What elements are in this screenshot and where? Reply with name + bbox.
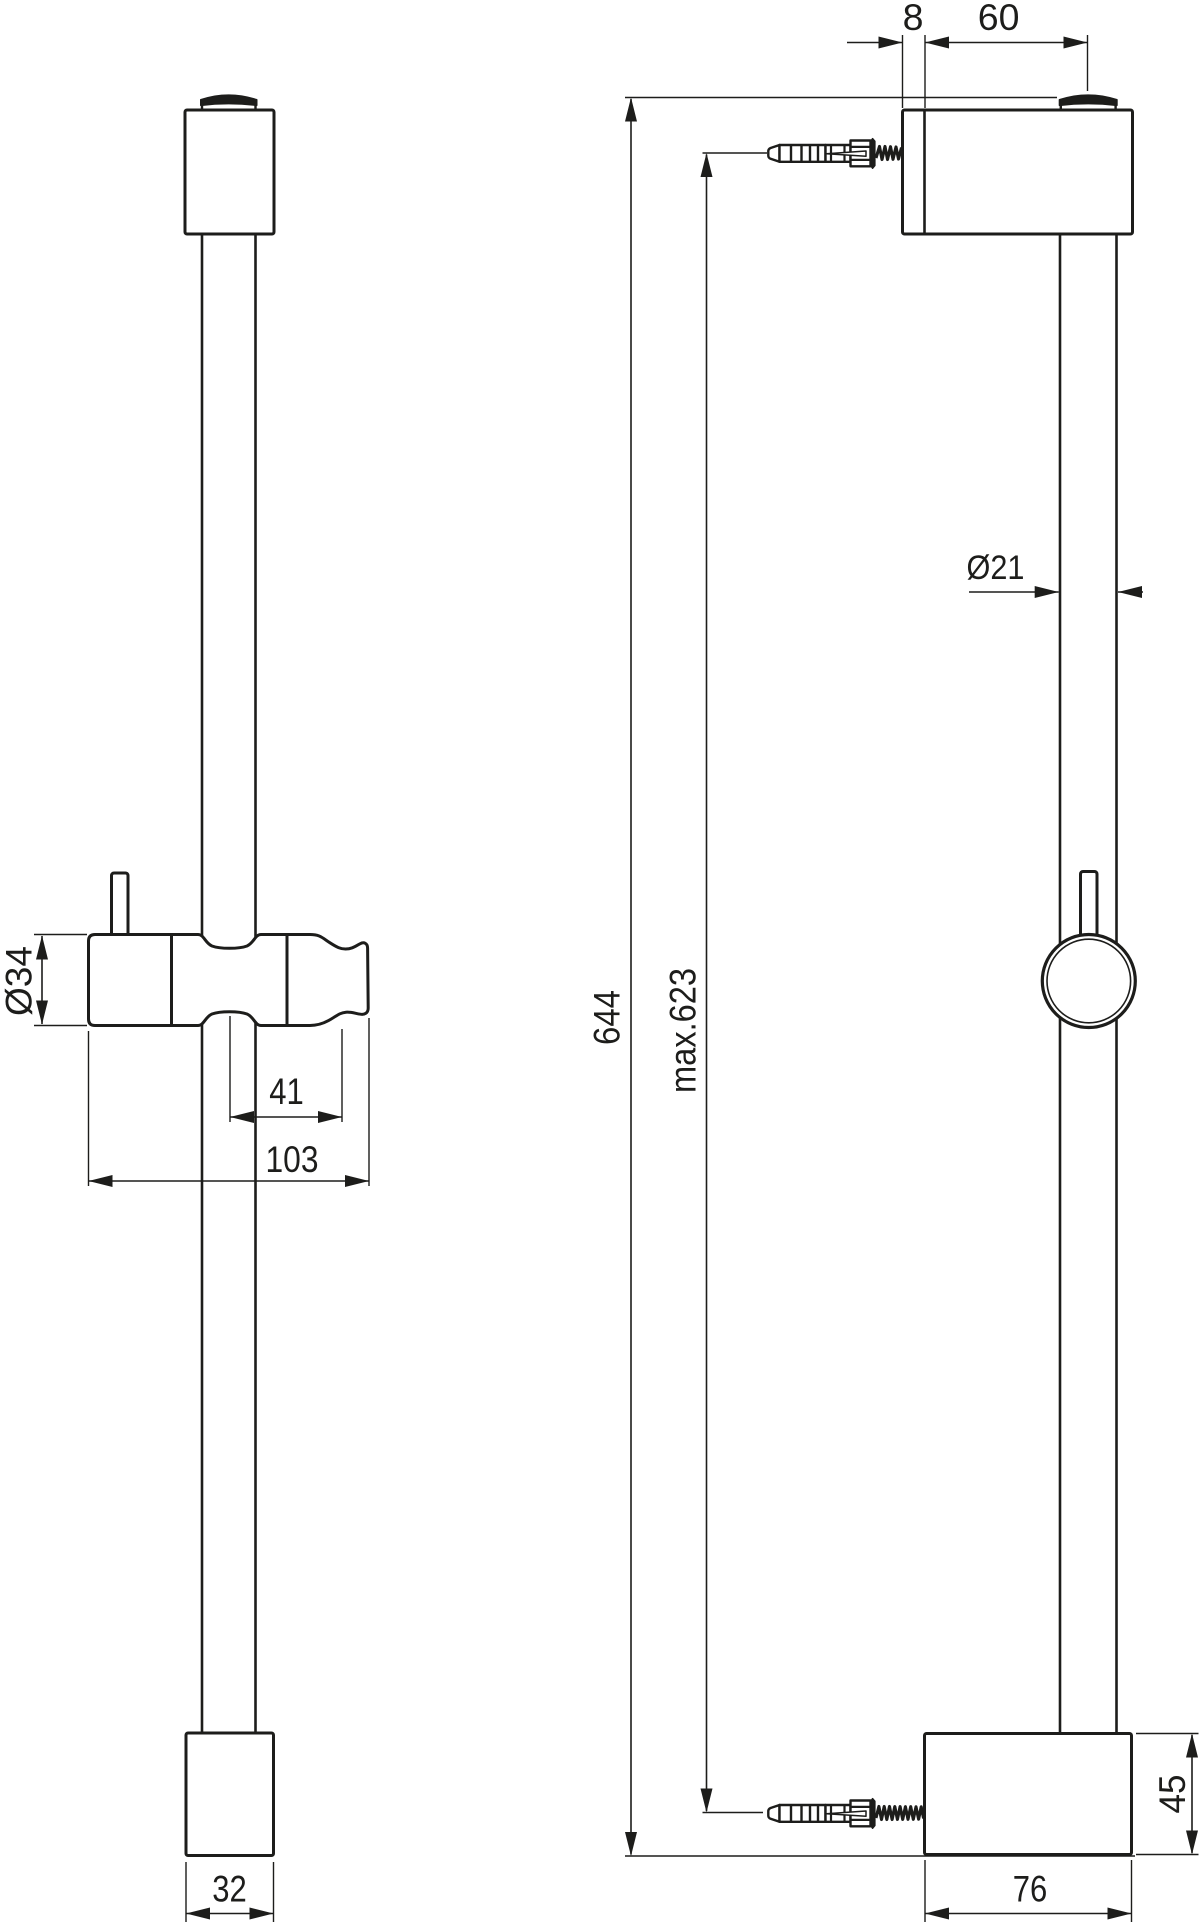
svg-text:76: 76 bbox=[1013, 1868, 1048, 1910]
svg-text:32: 32 bbox=[212, 1868, 247, 1910]
svg-text:60: 60 bbox=[978, 0, 1020, 38]
svg-text:644: 644 bbox=[586, 990, 628, 1045]
svg-text:103: 103 bbox=[266, 1138, 319, 1180]
svg-text:45: 45 bbox=[1151, 1775, 1193, 1814]
svg-text:max.623: max.623 bbox=[662, 968, 704, 1093]
svg-text:41: 41 bbox=[269, 1070, 304, 1112]
svg-text:Ø21: Ø21 bbox=[967, 549, 1025, 587]
svg-text:Ø34: Ø34 bbox=[0, 946, 40, 1016]
svg-text:8: 8 bbox=[903, 0, 924, 38]
